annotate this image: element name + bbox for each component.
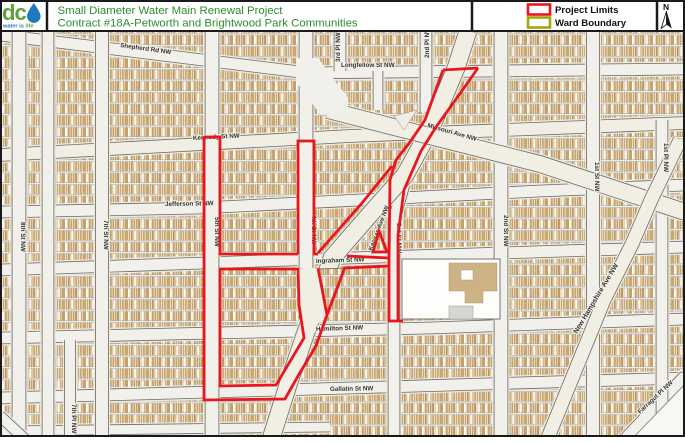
svg-text:water is life: water is life: [2, 24, 33, 30]
svg-text:7th Pl NW: 7th Pl NW: [70, 404, 77, 433]
svg-text:Longfellow St NW: Longfellow St NW: [341, 62, 395, 69]
svg-text:Project Limits: Project Limits: [555, 5, 618, 16]
svg-text:N: N: [663, 2, 669, 12]
svg-text:3rd Pl NW: 3rd Pl NW: [335, 32, 342, 62]
svg-text:7th St NW: 7th St NW: [102, 220, 109, 250]
svg-text:8th St NW: 8th St NW: [19, 222, 26, 252]
svg-text:Gallatin St NW: Gallatin St NW: [330, 385, 374, 393]
svg-text:dc: dc: [2, 0, 26, 25]
svg-text:Ward Boundary: Ward Boundary: [555, 18, 627, 29]
svg-text:Contract #18A-Petworth and Bri: Contract #18A-Petworth and Brightwood Pa…: [58, 17, 358, 29]
svg-text:Small Diameter Water Main Rene: Small Diameter Water Main Renewal Projec…: [58, 5, 284, 17]
svg-text:Jefferson St NW: Jefferson St NW: [165, 200, 214, 208]
svg-text:2nd St NW: 2nd St NW: [502, 215, 509, 247]
svg-text:1st Pl NW: 1st Pl NW: [662, 143, 669, 172]
svg-text:1st St NW: 1st St NW: [593, 162, 600, 191]
